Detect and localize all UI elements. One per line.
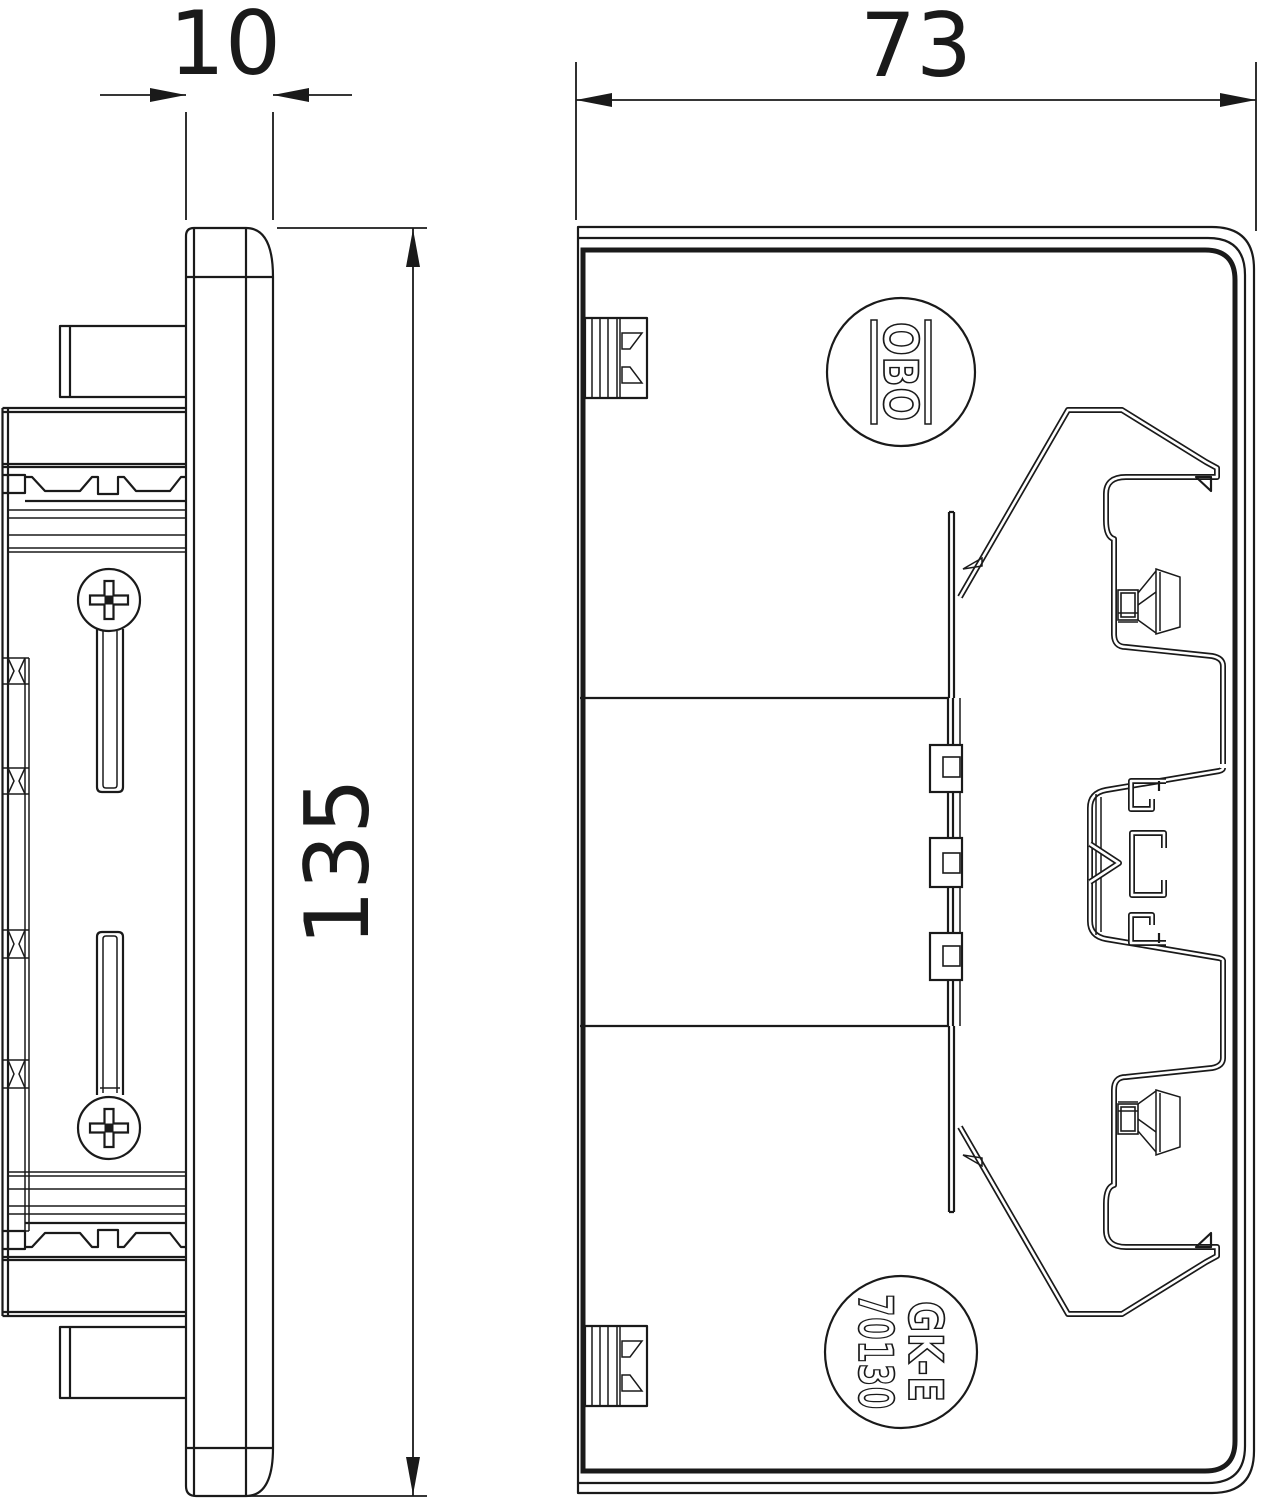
bracket-bottom [1131,915,1166,943]
front-view-bottom-tooth [960,960,1223,1314]
screw-bottom-icon [78,1097,140,1159]
dimension-height: 135 [196,228,427,1496]
center-box-clip-1 [930,745,962,792]
product-code-line1: GK-E [897,1301,952,1403]
technical-drawing: OBO GK-E 70130 10 73 135 [0,0,1266,1500]
dim-front-width-label: 73 [860,0,972,97]
dim-arrow-up-icon [406,229,420,267]
side-view-teeth-top [3,475,187,501]
front-view-clip-top-left [585,318,647,398]
front-view-center-box [580,512,962,1212]
screw-top-slot [97,629,123,792]
side-view [2,228,274,1496]
drawing-canvas: OBO GK-E 70130 10 73 135 [0,0,1266,1500]
product-code-stamp: GK-E 70130 [825,1276,977,1428]
side-view-face-plate [186,228,273,1496]
side-view-body [2,408,187,1316]
dimension-front-width: 73 [576,0,1256,231]
center-box-clip-3 [930,933,962,980]
front-view-middle-section [1090,768,1223,961]
obo-logo-text: OBO [872,322,927,422]
top-funnel-detail [1118,569,1180,634]
front-view-top-tooth [960,410,1223,764]
screw-top-icon [78,569,140,631]
side-view-bottom-latch [60,1327,186,1398]
front-view-clip-bottom-left [585,1326,647,1406]
screw-bottom-slot [97,932,123,1095]
dim-side-width-label: 10 [169,0,281,95]
side-view-top-latch [60,326,186,397]
bottom-funnel-detail [1118,1090,1180,1155]
dim-arrow-down-icon [406,1457,420,1495]
dim-height-label: 135 [286,778,389,946]
middle-v-arrow [1090,844,1119,882]
front-view: OBO GK-E 70130 [578,227,1254,1493]
dim-arrow-right-icon [1220,93,1256,107]
center-box-clip-2 [930,838,962,887]
side-view-left-rail [2,658,30,1231]
bracket-middle [1132,833,1164,895]
product-code-line2: 70130 [847,1294,902,1410]
side-view-teeth-bottom [3,1223,187,1249]
obo-logo-stamp: OBO [827,298,975,446]
dimension-side-width: 10 [100,0,352,220]
dim-arrow-left-icon [576,93,612,107]
